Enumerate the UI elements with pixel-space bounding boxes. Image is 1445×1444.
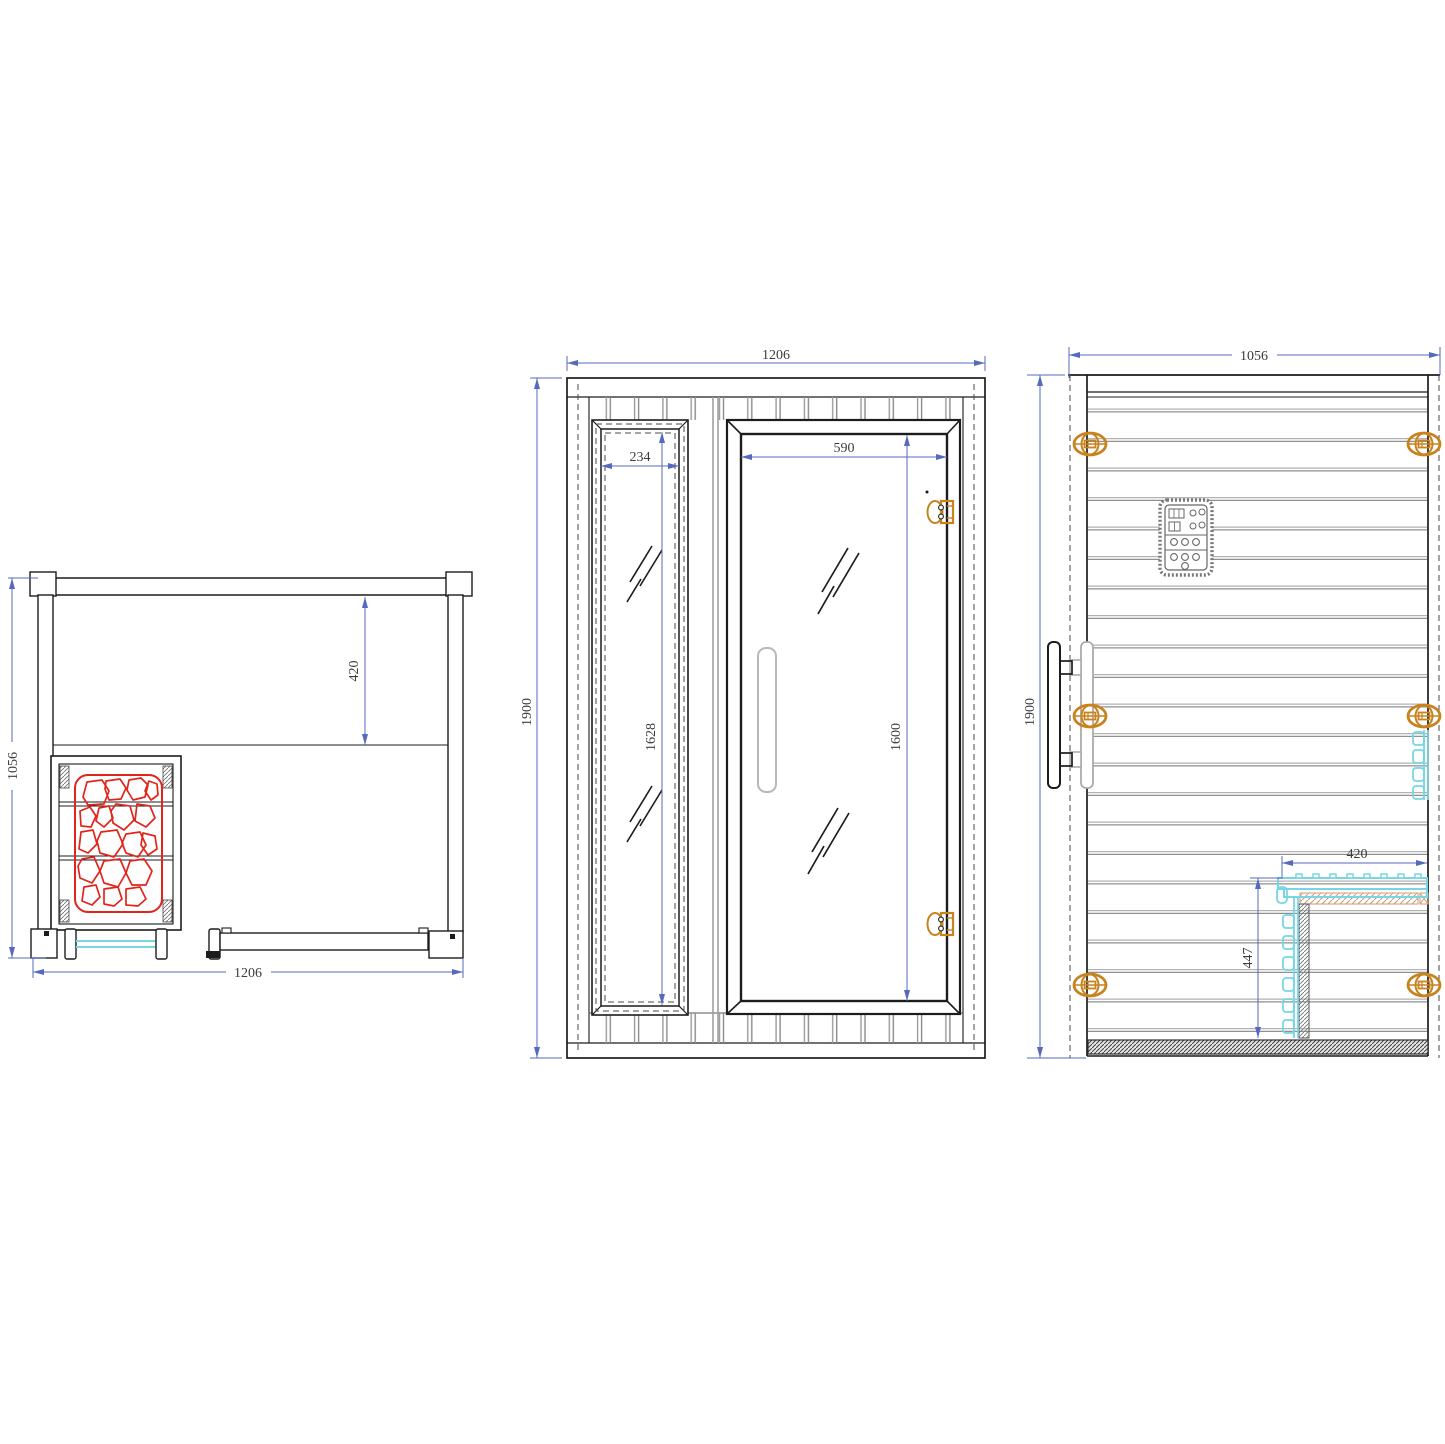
top-plan-view: 1056 420 1206 bbox=[6, 572, 472, 981]
dim-side-height: 1900 bbox=[1023, 698, 1038, 726]
door-handle-front[interactable] bbox=[758, 648, 776, 792]
bench-underside-hatch bbox=[1300, 893, 1418, 904]
dim-side-bench-height: 447 bbox=[1241, 948, 1256, 969]
plan-top-wall bbox=[37, 578, 465, 595]
plan-corner-cap-left bbox=[30, 572, 56, 596]
dim-side-bench-width: 420 bbox=[1347, 847, 1368, 862]
dim-window-width: 234 bbox=[630, 450, 651, 465]
plan-door-jamb bbox=[65, 929, 76, 959]
plan-door-jamb bbox=[156, 929, 167, 959]
drawing-canvas: 1056 420 1206 bbox=[0, 0, 1445, 1444]
sauna-technical-drawing: 1056 420 1206 bbox=[0, 0, 1445, 1444]
dim-side-width: 1056 bbox=[1240, 349, 1268, 364]
dim-door-width: 590 bbox=[834, 441, 855, 456]
front-window bbox=[592, 420, 688, 1015]
plan-heater bbox=[51, 756, 181, 930]
plan-door-leaf bbox=[220, 933, 428, 950]
plan-right-wall bbox=[448, 595, 463, 932]
front-door bbox=[727, 420, 960, 1014]
dim-front-width: 1206 bbox=[762, 348, 790, 363]
dim-top-bench: 420 bbox=[347, 661, 362, 682]
side-elevation-view: 1056 1900 420 447 bbox=[1023, 347, 1440, 1058]
dim-front-height: 1900 bbox=[520, 698, 535, 726]
floor-hatch bbox=[1088, 1040, 1428, 1054]
dim-window-height: 1628 bbox=[644, 723, 659, 751]
plan-corner-cap-right bbox=[446, 572, 472, 596]
dim-top-depth: 1056 bbox=[6, 752, 21, 780]
plan-front-wall bbox=[31, 928, 463, 959]
front-top-slats bbox=[589, 397, 963, 420]
dim-door-height: 1600 bbox=[889, 723, 904, 751]
front-bottom-slats bbox=[589, 1013, 963, 1043]
front-elevation-view: 1206 1900 234 1628 590 1600 bbox=[520, 348, 985, 1058]
dim-top-width: 1206 bbox=[234, 966, 262, 981]
control-panel[interactable] bbox=[1160, 500, 1212, 575]
bench-leg-post bbox=[1299, 904, 1309, 1038]
